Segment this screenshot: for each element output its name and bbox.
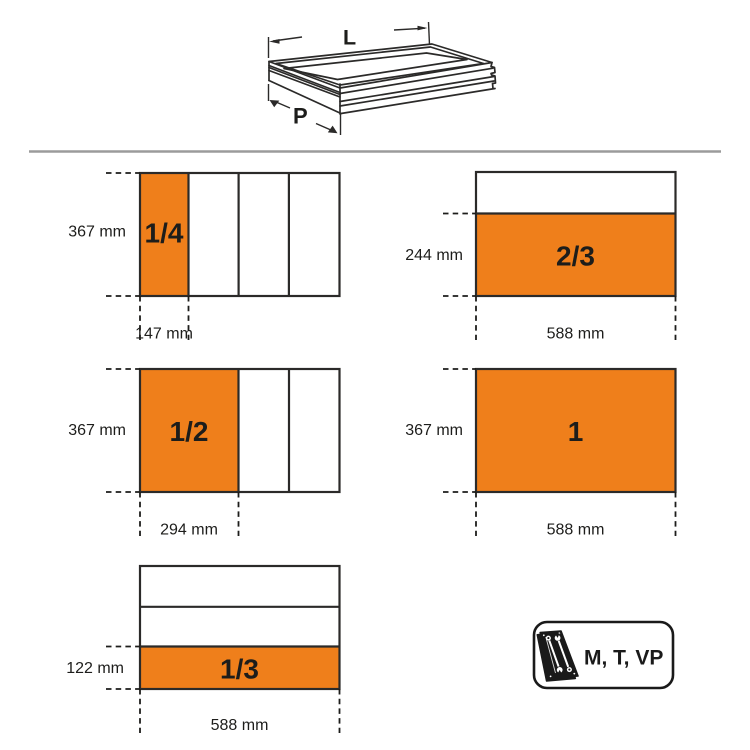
svg-text:588 mm: 588 mm [547, 326, 605, 343]
svg-text:588 mm: 588 mm [547, 522, 605, 539]
svg-text:L: L [343, 26, 356, 50]
svg-text:P: P [293, 104, 308, 129]
svg-text:2/3: 2/3 [556, 241, 595, 272]
svg-text:367 mm: 367 mm [68, 422, 126, 439]
svg-text:367 mm: 367 mm [68, 224, 126, 241]
svg-text:367 mm: 367 mm [405, 422, 463, 439]
svg-text:294 mm: 294 mm [160, 522, 218, 539]
svg-text:M, T, VP: M, T, VP [584, 647, 663, 670]
svg-text:588 mm: 588 mm [211, 717, 269, 734]
svg-text:122 mm: 122 mm [66, 660, 124, 677]
svg-text:1/4: 1/4 [145, 218, 184, 249]
svg-text:147 mm: 147 mm [135, 326, 193, 343]
svg-text:1: 1 [568, 416, 584, 447]
svg-text:1/3: 1/3 [220, 654, 259, 685]
svg-text:1/2: 1/2 [170, 416, 209, 447]
svg-text:244 mm: 244 mm [405, 247, 463, 264]
